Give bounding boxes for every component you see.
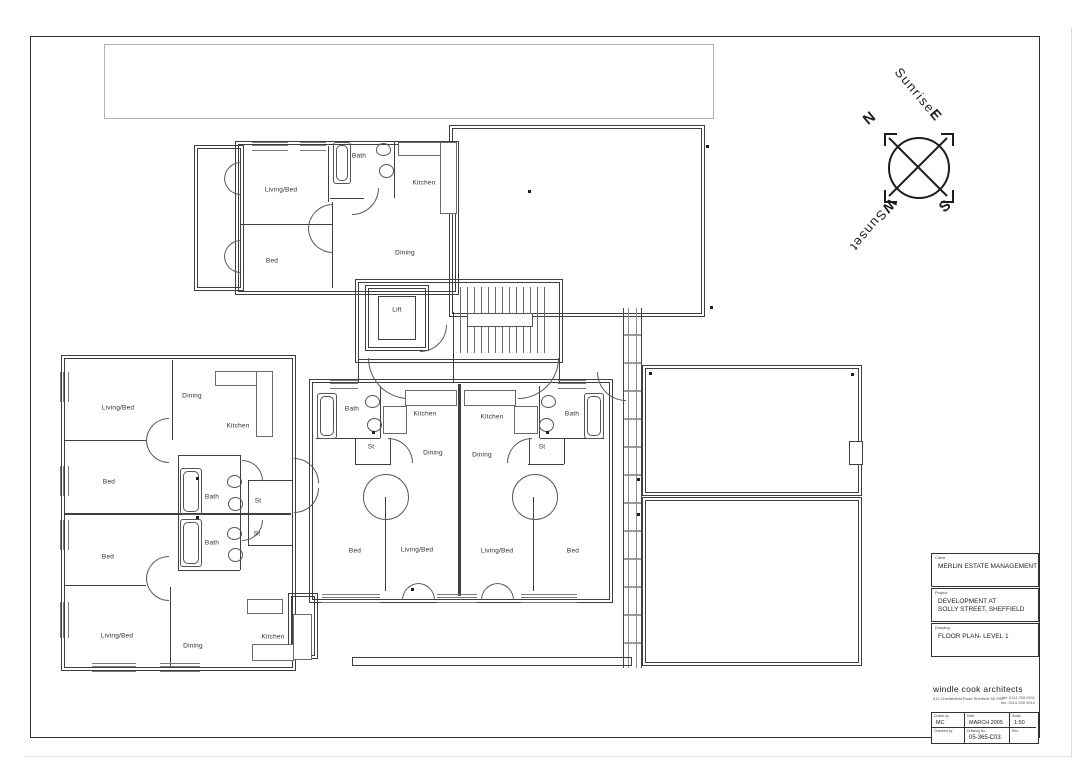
kitchen-counter [252,644,294,661]
room-label-dining: Dining [182,393,202,400]
room-label-kitchen: Kitchen [261,634,284,641]
project-value: DEVELOPMENT AT SOLLY STREET, SHEFFIELD [938,598,1024,613]
kitchen-counter [215,371,257,386]
room-label-st: St [539,444,546,451]
bathtub [333,142,351,184]
bathtub [584,393,604,439]
curved-wall [512,474,558,520]
room-label-dining: Dining [395,250,415,257]
drawing-no-label: Drawing No. [967,729,986,733]
window [330,380,358,389]
room-label-kitchen: Kitchen [412,180,435,187]
room-label-lift: Lift [392,307,401,314]
kitchen-counter [247,599,283,614]
wall [355,438,356,464]
compass-arrowhead-n [884,133,897,146]
sink [379,164,394,178]
room-label-st: St [368,444,375,451]
curved-wall [363,474,409,520]
project-label: Project [935,590,947,595]
terrace-edge [352,665,632,666]
room-label-living-bed: Living/Bed [401,547,433,554]
kitchen-counter [256,371,273,437]
drawing-no-value: 05-365-C03 [969,735,1001,741]
kitchen-counter [293,614,312,660]
drawn-by-cell: Drawn by MC [932,713,965,728]
checked-by-cell: Checked by [932,728,965,743]
toilet [227,475,242,488]
junction-dot [411,588,414,591]
drawing-label: Drawing [935,625,950,630]
window [60,466,69,496]
kitchen-counter [440,142,457,214]
project-box: Project DEVELOPMENT AT SOLLY STREET, SHE… [931,588,1039,622]
junction-dot [196,516,199,519]
room-label-bath: Bath [565,411,579,418]
bathtub [317,393,337,439]
rev-cell: Rev. [1010,728,1036,743]
client-label: Client [935,555,945,560]
firm-name: windle cook architects [933,684,1037,694]
drawn-by-label: Drawn by [934,714,949,718]
junction-dot [706,145,709,148]
window [60,602,69,638]
wall [178,515,179,570]
room-label-kitchen: Kitchen [480,414,503,421]
project-line2: SOLLY STREET, SHEFFIELD [938,606,1024,614]
project-line1: DEVELOPMENT AT [938,598,1024,606]
room-label-st: St [254,531,261,538]
compass-arrowhead-e [941,133,954,146]
room-label-kitchen: Kitchen [226,423,249,430]
drawing-box: Drawing FLOOR PLAN- LEVEL 1 [931,623,1039,657]
wall [453,312,454,382]
wall [240,515,241,570]
junction-dot [196,477,199,480]
room-label-bath: Bath [205,540,219,547]
junction-dot [372,431,375,434]
window [60,372,69,402]
terrace-edge [352,657,353,666]
junction-dot [546,431,549,434]
kitchen-counter [405,390,457,406]
junction-dot [637,513,640,516]
wall [645,368,859,493]
room-label-living-bed: Living/Bed [265,187,297,194]
wall [564,438,565,464]
wall [64,585,146,586]
junction-dot [528,190,531,193]
window [300,142,326,151]
drawing-title: FLOOR PLAN- LEVEL 1 [938,633,1009,641]
drawing-no-cell: Drawing No. 05-365-C03 [965,728,1010,743]
toilet [365,395,380,408]
toilet [541,395,556,408]
rev-label: Rev. [1012,729,1019,733]
wall-notch [849,441,863,465]
wall [178,455,179,513]
wall [170,587,171,666]
wall-hatched-strip-inner [628,308,637,668]
window [60,520,69,550]
bathtub [180,468,202,515]
wall [380,386,381,438]
drawn-by-value: MC [936,720,945,726]
date-label: Date [967,714,974,718]
window [437,594,477,603]
window [322,594,380,603]
firm-telfax: tel. 0114 255 9911 fax. 0114 255 9910 [1001,695,1035,705]
room-label-dining: Dining [423,450,443,457]
room-label-bed: Bed [349,548,361,555]
room-label-dining: Dining [183,643,203,650]
room-label-living-bed: Living/Bed [481,548,513,555]
scale-label: Scale [1012,714,1021,718]
junction-dot [637,478,640,481]
wall [528,464,564,465]
window [160,663,200,672]
adjacent-building-outline [104,44,714,119]
sink [367,418,382,432]
sink [539,418,554,432]
wall [358,358,359,382]
wall [64,440,146,441]
wall [248,545,292,546]
wall [458,384,461,596]
date-value: MARCH 2005 [969,720,1003,726]
firm-fax: fax. 0114 255 9910 [1001,700,1035,705]
title-table: Drawn by MC Date MARCH 2005 Scale 1:50 C… [931,712,1039,744]
drawing-sheet: Living/BedBathKitchenBedDiningLiftLiving… [0,0,1080,764]
checked-by-label: Checked by [934,729,952,733]
wall [645,500,859,663]
room-label-bath: Bath [352,153,366,160]
junction-dot [851,373,854,376]
terrace-edge [631,657,632,666]
kitchen-counter [398,142,444,156]
wall [559,358,560,382]
page-edge [24,756,1072,757]
kitchen-counter [464,390,516,406]
window [558,380,586,389]
window [252,142,288,151]
room-label-st: St [255,498,262,505]
firm-block: windle cook architects 511 Chesterfield … [933,684,1037,701]
room-label-living-bed: Living/Bed [101,633,133,640]
wall [355,464,391,465]
client-box: Client MERLIN ESTATE MANAGEMENT [931,553,1039,587]
room-label-bed: Bed [103,479,115,486]
bathtub [180,519,202,567]
date-cell: Date MARCH 2005 [965,713,1010,728]
client-value: MERLIN ESTATE MANAGEMENT [938,563,1037,571]
kitchen-counter [514,406,538,434]
wall [328,146,329,202]
toilet [227,527,242,540]
room-label-dining: Dining [472,452,492,459]
room-label-bed: Bed [567,548,579,555]
kitchen-counter [383,406,407,434]
toilet [376,143,391,156]
scale-value: 1:50 [1014,720,1025,726]
room-label-living-bed: Living/Bed [102,405,134,412]
room-label-bed: Bed [102,554,114,561]
terrace-edge [352,657,632,658]
wall [178,455,240,456]
wall [178,570,240,571]
wall [539,386,540,438]
junction-dot [710,306,713,309]
window [92,663,136,672]
page-edge [1071,28,1072,758]
stair-handrail [467,313,533,327]
sink [228,497,243,511]
junction-dot [649,372,652,375]
scale-cell: Scale 1:50 [1010,713,1036,728]
room-label-kitchen: Kitchen [413,411,436,418]
window [521,594,577,603]
lift-inner [378,296,416,340]
room-label-bath: Bath [345,406,359,413]
wall [172,360,173,440]
room-label-bed: Bed [266,258,278,265]
sink [228,548,243,562]
wall [394,142,395,198]
room-label-bath: Bath [205,494,219,501]
wall [248,480,249,513]
